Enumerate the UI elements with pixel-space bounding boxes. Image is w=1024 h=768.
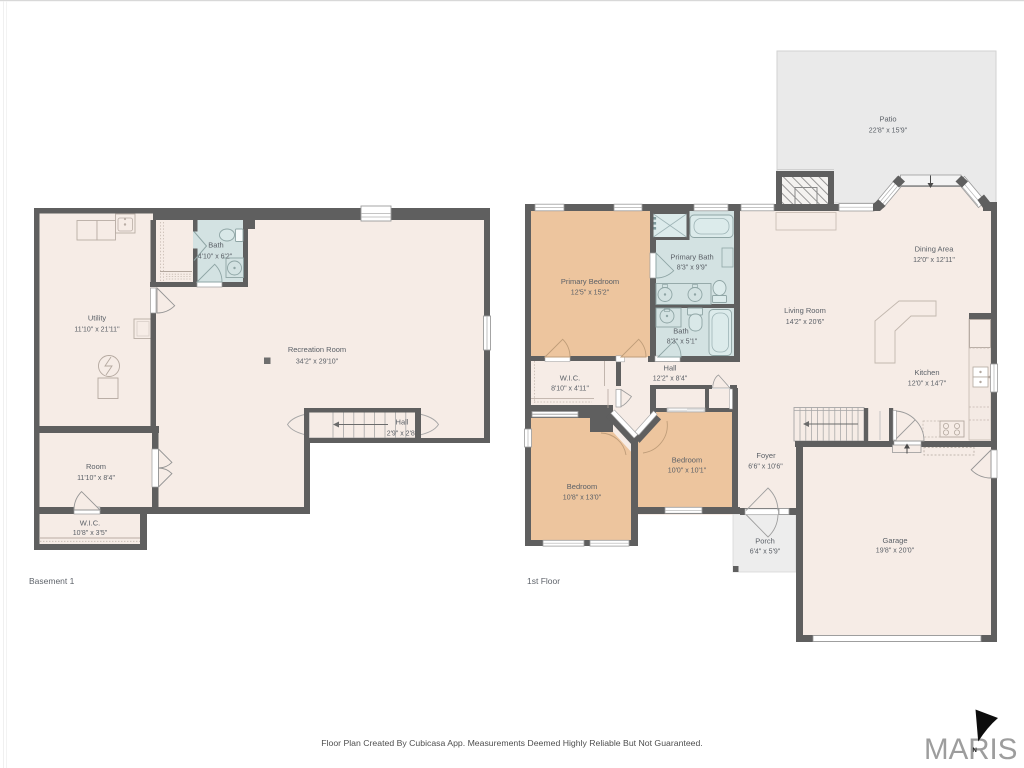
svg-text:Living Room: Living Room (784, 306, 826, 315)
svg-text:Utility: Utility (88, 314, 107, 323)
svg-text:Patio: Patio (879, 115, 896, 124)
svg-text:8'10" x 4'11": 8'10" x 4'11" (551, 386, 589, 393)
svg-text:11'10" x 8'4": 11'10" x 8'4" (77, 475, 115, 482)
svg-text:14'2" x 20'6": 14'2" x 20'6" (786, 319, 825, 326)
svg-text:6'6" x 10'6": 6'6" x 10'6" (748, 464, 783, 471)
svg-text:Basement 1: Basement 1 (29, 576, 75, 586)
svg-text:11'10" x 21'11": 11'10" x 21'11" (74, 327, 120, 334)
svg-text:Garage: Garage (882, 536, 907, 545)
svg-text:Dining Area: Dining Area (915, 245, 955, 254)
svg-text:Bath: Bath (208, 241, 223, 250)
svg-text:10'8" x 13'0": 10'8" x 13'0" (563, 495, 602, 502)
svg-text:Hall: Hall (664, 364, 677, 373)
svg-text:Bedroom: Bedroom (672, 456, 702, 465)
svg-text:2'9" x 2'8": 2'9" x 2'8" (387, 431, 418, 438)
svg-text:8'3" x 9'9": 8'3" x 9'9" (677, 265, 708, 272)
svg-text:Kitchen: Kitchen (914, 368, 939, 377)
svg-text:12'0" x 12'11": 12'0" x 12'11" (913, 257, 955, 264)
svg-text:10'0" x 10'1": 10'0" x 10'1" (668, 468, 707, 475)
svg-text:Hall: Hall (396, 418, 409, 427)
svg-text:MARIS: MARIS (924, 733, 1017, 766)
svg-text:Porch: Porch (755, 537, 775, 546)
svg-text:Room: Room (86, 462, 106, 471)
svg-text:10'8" x 3'5": 10'8" x 3'5" (73, 530, 108, 537)
svg-text:6'4" x 5'9": 6'4" x 5'9" (750, 549, 781, 556)
svg-text:12'5" x 15'2": 12'5" x 15'2" (571, 290, 610, 297)
svg-text:Floor Plan Created By Cubicasa: Floor Plan Created By Cubicasa App. Meas… (321, 738, 702, 748)
svg-text:Recreation Room: Recreation Room (288, 345, 346, 354)
svg-text:Foyer: Foyer (756, 451, 776, 460)
svg-text:8'3" x 5'1": 8'3" x 5'1" (667, 339, 698, 346)
svg-text:1st Floor: 1st Floor (527, 576, 560, 586)
svg-text:12'0" x 14'7": 12'0" x 14'7" (908, 381, 947, 388)
svg-text:Primary Bedroom: Primary Bedroom (561, 277, 619, 286)
svg-text:4'10" x 6'2": 4'10" x 6'2" (198, 254, 233, 261)
svg-text:Bedroom: Bedroom (567, 482, 597, 491)
svg-text:Primary Bath: Primary Bath (670, 253, 713, 262)
svg-text:W.I.C.: W.I.C. (560, 374, 580, 383)
svg-text:Bath: Bath (673, 327, 688, 336)
svg-text:34'2" x 29'10": 34'2" x 29'10" (296, 359, 339, 366)
svg-text:22'8" x 15'9": 22'8" x 15'9" (869, 128, 908, 135)
svg-text:19'8" x 20'0": 19'8" x 20'0" (876, 548, 915, 555)
svg-text:12'2" x 8'4": 12'2" x 8'4" (653, 376, 688, 383)
svg-text:W.I.C.: W.I.C. (80, 519, 100, 528)
svg-text:N: N (973, 748, 977, 754)
